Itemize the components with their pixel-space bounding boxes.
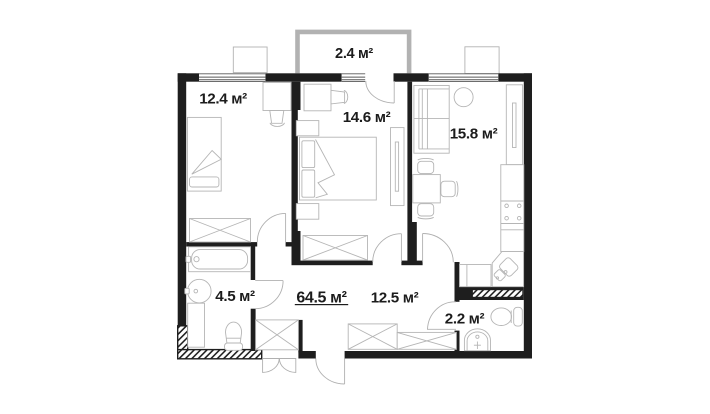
svg-text:14.6 м²: 14.6 м² xyxy=(343,109,391,126)
svg-text:12.4 м²: 12.4 м² xyxy=(199,91,247,108)
svg-text:2.4 м²: 2.4 м² xyxy=(335,46,373,62)
svg-text:15.8 м²: 15.8 м² xyxy=(450,125,498,142)
svg-text:2.2 м²: 2.2 м² xyxy=(445,310,485,327)
svg-text:64.5 м²: 64.5 м² xyxy=(296,289,346,306)
svg-text:12.5 м²: 12.5 м² xyxy=(371,290,419,307)
svg-text:4.5 м²: 4.5 м² xyxy=(215,288,255,305)
